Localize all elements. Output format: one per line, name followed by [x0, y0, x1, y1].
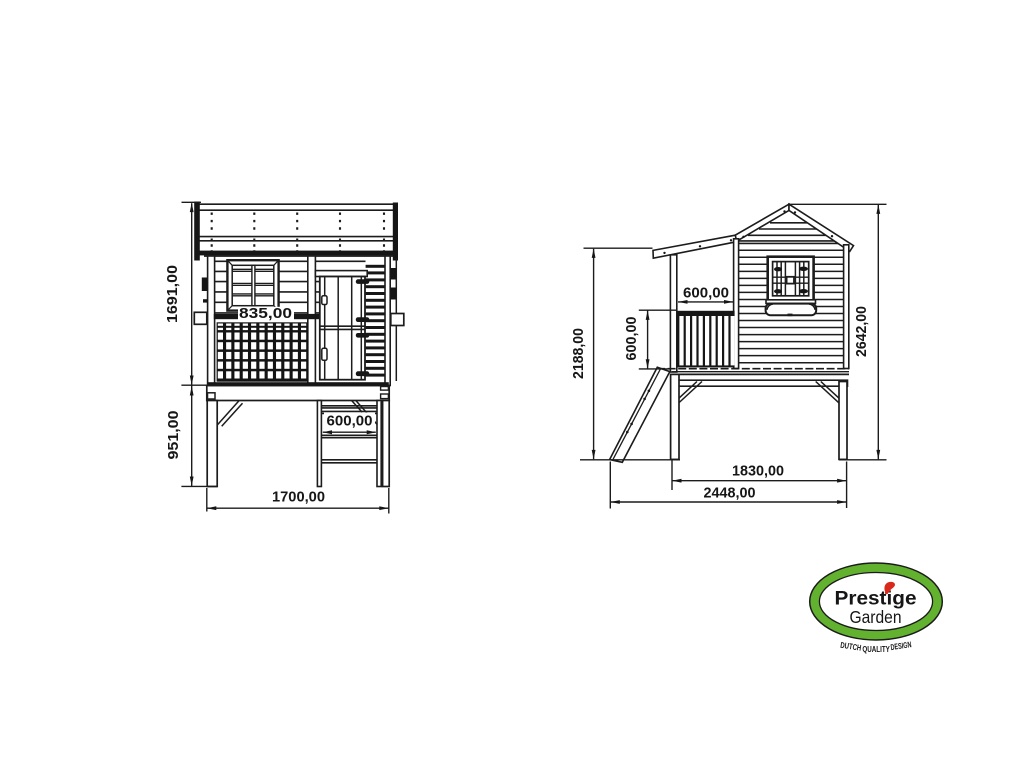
- svg-text:1691,00: 1691,00: [164, 265, 181, 323]
- svg-text:QUALITY: QUALITY: [862, 644, 890, 654]
- svg-text:2188,00: 2188,00: [570, 328, 587, 379]
- svg-text:835,00: 835,00: [239, 305, 292, 322]
- svg-text:600,00: 600,00: [623, 317, 640, 361]
- svg-text:1700,00: 1700,00: [272, 489, 325, 506]
- svg-text:600,00: 600,00: [327, 412, 373, 429]
- svg-text:2642,00: 2642,00: [853, 306, 870, 357]
- svg-text:600,00: 600,00: [683, 285, 729, 302]
- svg-text:1830,00: 1830,00: [732, 462, 784, 479]
- svg-text:Garden: Garden: [850, 607, 902, 627]
- svg-text:2448,00: 2448,00: [704, 485, 756, 502]
- svg-text:951,00: 951,00: [165, 411, 182, 460]
